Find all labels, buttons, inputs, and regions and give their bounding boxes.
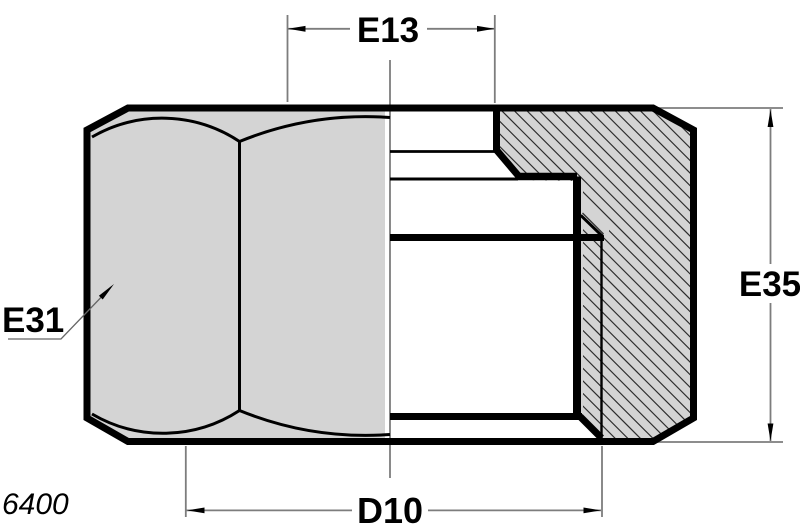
svg-text:E31: E31 [2,301,64,340]
svg-text:E13: E13 [357,11,419,50]
svg-text:6400: 6400 [2,488,69,521]
svg-text:E35: E35 [739,265,800,304]
svg-text:D10: D10 [357,490,423,530]
